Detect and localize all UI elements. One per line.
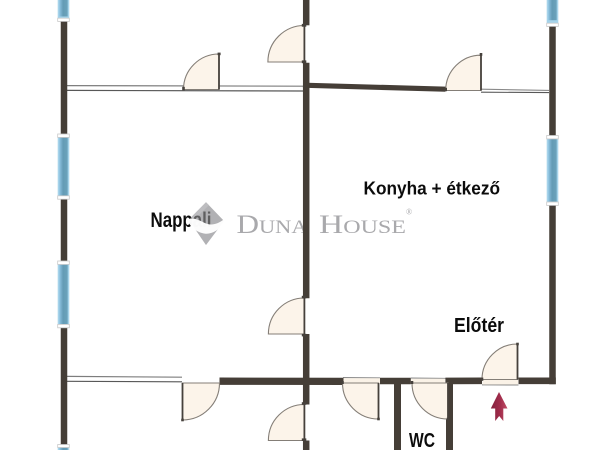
svg-text:Konyha + étkező: Konyha + étkező (364, 178, 501, 199)
svg-text:®: ® (406, 208, 412, 217)
svg-text:Duna: Duna (237, 209, 308, 239)
svg-text:WC: WC (409, 430, 435, 450)
svg-text:Előtér: Előtér (454, 314, 504, 337)
svg-text:House: House (319, 209, 406, 239)
